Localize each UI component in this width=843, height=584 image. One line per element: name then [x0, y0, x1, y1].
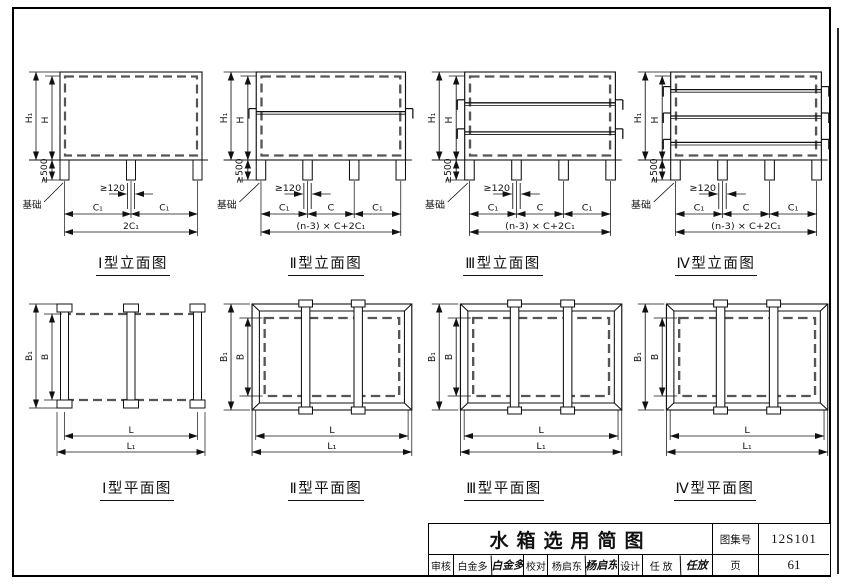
tank-outline: [465, 72, 616, 160]
frame-outline: [252, 304, 412, 410]
svg-text:C₁: C₁: [93, 203, 103, 214]
svg-text:C₁: C₁: [488, 203, 499, 214]
svg-text:≥120: ≥120: [275, 183, 302, 194]
svg-text:L: L: [538, 425, 544, 436]
svg-text:C₁: C₁: [582, 203, 593, 214]
elevation-II-drawing: H₁H≥500基础≥120C₁CC₁(n-3) × C+2C₁: [210, 42, 416, 242]
plan-IV-drawing: B₁BLL₁: [624, 294, 832, 464]
tank-outline: [60, 72, 202, 160]
svg-text:C: C: [327, 203, 334, 214]
plan-III-drawing: B₁BLL₁: [418, 294, 626, 464]
staff-name-reviewer: 白金多: [453, 555, 491, 575]
atlas-number-label: 图集号: [712, 524, 758, 554]
elevation-title-II: Ⅱ型立面图: [234, 252, 418, 276]
elevation-IV-drawing: H₁H≥500基础≥120C₁CC₁(n-3) × C+2C₁: [624, 42, 832, 242]
svg-text:B: B: [444, 354, 455, 360]
staff-role-reviewer: 审核: [429, 555, 453, 575]
svg-text:2C₁: 2C₁: [123, 221, 139, 232]
plan-II-drawing: B₁BLL₁: [210, 294, 416, 464]
support-legs: [256, 160, 405, 180]
svg-text:C₁: C₁: [279, 203, 290, 214]
svg-text:L: L: [128, 425, 134, 436]
elevation-view-I: H₁H≥500基础≥120C₁C₁2C₁: [16, 42, 212, 242]
svg-text:(n-3) × C+2C₁: (n-3) × C+2C₁: [296, 221, 365, 232]
frame-outline: [666, 304, 827, 410]
plan-title-III: Ⅲ型平面图: [412, 477, 596, 501]
svg-text:L₁: L₁: [742, 441, 752, 452]
svg-text:≥500: ≥500: [234, 158, 245, 183]
elevation-view-IV: H₁H≥500基础≥120C₁CC₁(n-3) × C+2C₁: [624, 42, 832, 242]
tank-outline: [679, 318, 815, 396]
svg-text:≥500: ≥500: [39, 158, 50, 183]
tank-outline: [265, 318, 400, 396]
svg-text:B₁: B₁: [24, 351, 35, 361]
page-number: 61: [758, 554, 829, 575]
scan-edge-line: [837, 28, 839, 574]
elevation-view-II: H₁H≥500基础≥120C₁CC₁(n-3) × C+2C₁: [210, 42, 416, 242]
elevation-III-drawing: H₁H≥500基础≥120C₁CC₁(n-3) × C+2C₁: [418, 42, 626, 242]
page-label: 页: [712, 554, 758, 575]
svg-text:B: B: [235, 354, 246, 360]
support-legs: [60, 160, 202, 180]
svg-text:H: H: [235, 117, 246, 124]
staff-role-designer: 设计: [618, 555, 642, 575]
svg-text:基础: 基础: [631, 198, 651, 211]
plan-view-III: B₁BLL₁: [418, 294, 626, 464]
svg-text:H: H: [444, 117, 455, 124]
plan-title-II: Ⅱ型平面图: [234, 477, 418, 501]
svg-text:B₁: B₁: [633, 352, 644, 362]
staff-signature-proofreader: 杨启东: [585, 554, 618, 575]
svg-text:L₁: L₁: [127, 441, 136, 452]
plan-view-I: B₁BLL₁: [16, 294, 212, 464]
title-block: 水箱选用简图 审核 白金多 白金多 校对 杨启东 杨启东 设计 任 放 任放 图…: [428, 523, 831, 576]
svg-text:H₁: H₁: [427, 113, 438, 124]
plan-title-I: Ⅰ型平面图: [45, 477, 229, 501]
plan-I-drawing: B₁BLL₁: [16, 294, 212, 464]
svg-text:≥500: ≥500: [649, 158, 660, 183]
frame-outline: [460, 304, 621, 410]
staff-name-designer: 任 放: [642, 555, 680, 575]
svg-text:(n-3) × C+2C₁: (n-3) × C+2C₁: [505, 221, 575, 232]
svg-text:L: L: [744, 425, 750, 436]
svg-text:B: B: [40, 354, 51, 360]
svg-text:C₁: C₁: [372, 203, 383, 214]
svg-text:H: H: [40, 117, 51, 124]
elevation-I-drawing: H₁H≥500基础≥120C₁C₁2C₁: [16, 42, 212, 242]
svg-text:B₁: B₁: [427, 352, 438, 362]
elevation-view-III: H₁H≥500基础≥120C₁CC₁(n-3) × C+2C₁: [418, 42, 626, 242]
sheet-title: 水箱选用简图: [429, 524, 712, 554]
staff-signature-reviewer: 白金多: [491, 554, 524, 575]
support-legs: [465, 160, 616, 180]
svg-text:L₁: L₁: [327, 441, 336, 452]
svg-text:C₁: C₁: [694, 203, 705, 214]
tank-outline: [473, 318, 609, 396]
elevation-title-III: Ⅲ型立面图: [411, 252, 595, 276]
svg-text:H₁: H₁: [633, 113, 644, 124]
svg-text:H: H: [650, 117, 661, 124]
svg-text:≥500: ≥500: [443, 158, 454, 183]
svg-text:C₁: C₁: [159, 203, 169, 214]
plan-view-IV: B₁BLL₁: [624, 294, 832, 464]
tank-outline: [256, 72, 405, 160]
elevation-title-IV: Ⅳ型立面图: [624, 252, 808, 276]
elevation-title-I: Ⅰ型立面图: [41, 252, 225, 276]
plan-title-IV: Ⅳ型平面图: [623, 477, 807, 501]
plan-view-II: B₁BLL₁: [210, 294, 416, 464]
svg-text:基础: 基础: [217, 198, 237, 211]
svg-text:C: C: [743, 203, 750, 214]
svg-text:C₁: C₁: [788, 203, 799, 214]
svg-text:C: C: [537, 203, 544, 214]
staff-role-proofreader: 校对: [523, 555, 547, 575]
atlas-number-value: 12S101: [758, 524, 829, 554]
svg-text:H₁: H₁: [219, 112, 230, 123]
support-rails: [57, 304, 205, 408]
svg-text:H₁: H₁: [24, 112, 35, 123]
staff-name-proofreader: 杨启东: [547, 555, 585, 575]
svg-text:L: L: [329, 425, 335, 436]
svg-text:≥120: ≥120: [100, 183, 125, 194]
svg-text:≥120: ≥120: [483, 183, 510, 194]
svg-text:(n-3) × C+2C₁: (n-3) × C+2C₁: [711, 221, 781, 232]
staff-signature-designer: 任放: [679, 554, 712, 575]
staff-row: 审核 白金多 白金多 校对 杨启东 杨启东 设计 任 放 任放: [429, 554, 712, 575]
support-legs: [671, 160, 822, 180]
svg-text:基础: 基础: [22, 199, 41, 211]
svg-text:≥120: ≥120: [689, 183, 716, 194]
svg-text:L₁: L₁: [536, 441, 546, 452]
svg-text:B₁: B₁: [219, 352, 230, 362]
drawing-sheet: H₁H≥500基础≥120C₁C₁2C₁H₁H≥500基础≥120C₁CC₁(n…: [0, 0, 843, 584]
svg-text:B: B: [650, 354, 661, 360]
svg-text:基础: 基础: [425, 198, 445, 211]
